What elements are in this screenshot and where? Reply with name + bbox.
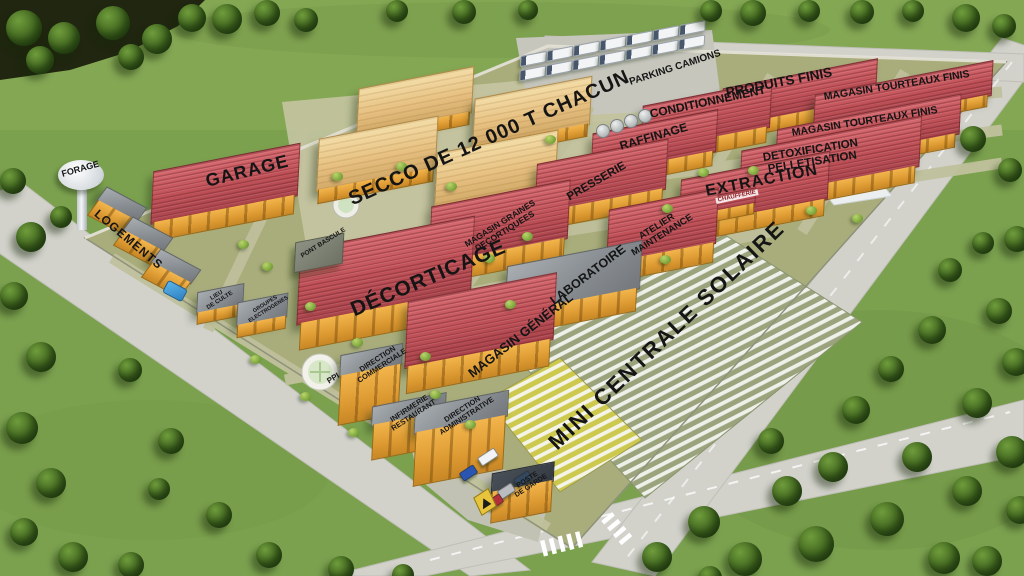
tree [992,14,1016,38]
tree [452,0,476,24]
tree [772,476,802,506]
bush [446,182,457,191]
bush [332,172,343,181]
tree [256,542,282,568]
tree [818,452,848,482]
storage-tank [610,119,624,133]
tree [0,168,26,194]
tree [386,0,408,22]
tree [962,388,992,418]
tree [952,476,982,506]
bush [348,428,359,437]
tree [206,502,232,528]
tree [50,206,72,228]
bush [352,338,363,347]
tree [842,396,870,424]
tree [870,502,904,536]
tree [48,22,80,54]
tree [1002,348,1024,376]
tree [518,0,538,20]
tree [728,542,762,576]
bush [420,352,431,361]
tree [998,158,1022,182]
bush [522,232,533,241]
bush [262,262,273,271]
tree [952,4,980,32]
tree [996,436,1024,468]
tree [142,24,172,54]
bush [806,206,817,215]
tree [850,0,874,24]
bush [300,392,311,401]
bush [545,135,556,144]
tree [26,342,56,372]
tree [118,358,142,382]
tree [0,282,28,310]
tree [178,4,206,32]
bush [305,302,316,311]
tree [740,0,766,26]
water-tower-stem [77,184,87,230]
tree [902,0,924,22]
bush [505,300,516,309]
tree [328,556,354,576]
tree [758,428,784,454]
tree [6,10,42,46]
tree [642,542,672,572]
tree [878,356,904,382]
tree [938,258,962,282]
tree [798,526,834,562]
tree [158,428,184,454]
tree [986,298,1012,324]
tree [212,4,242,34]
tree [688,506,720,538]
tree [928,542,960,574]
tree [972,546,1002,576]
bush [852,214,863,223]
bush [250,355,261,364]
bush [698,168,709,177]
tree [902,442,932,472]
bush [465,420,476,429]
storage-tank [596,124,610,138]
tree [700,0,722,22]
tree [960,126,986,152]
tree [96,6,130,40]
tree [10,518,38,546]
tree [1004,226,1024,252]
warning-triangle-icon [479,495,491,509]
tree [148,478,170,500]
bush [660,255,671,264]
tree [26,46,54,74]
tree [6,412,38,444]
tree [918,316,946,344]
tree [58,542,88,572]
tree [36,468,66,498]
tree [972,232,994,254]
site-plan-3d-render: FORAGE LOGEMENTS GARAGE SECCO DE 12 000 … [0,0,1024,576]
tree [16,222,46,252]
tree [118,44,144,70]
tree [798,0,820,22]
bush [238,240,249,249]
storage-tank [624,114,638,128]
tree [294,8,318,32]
tree [254,0,280,26]
tree [118,552,144,576]
